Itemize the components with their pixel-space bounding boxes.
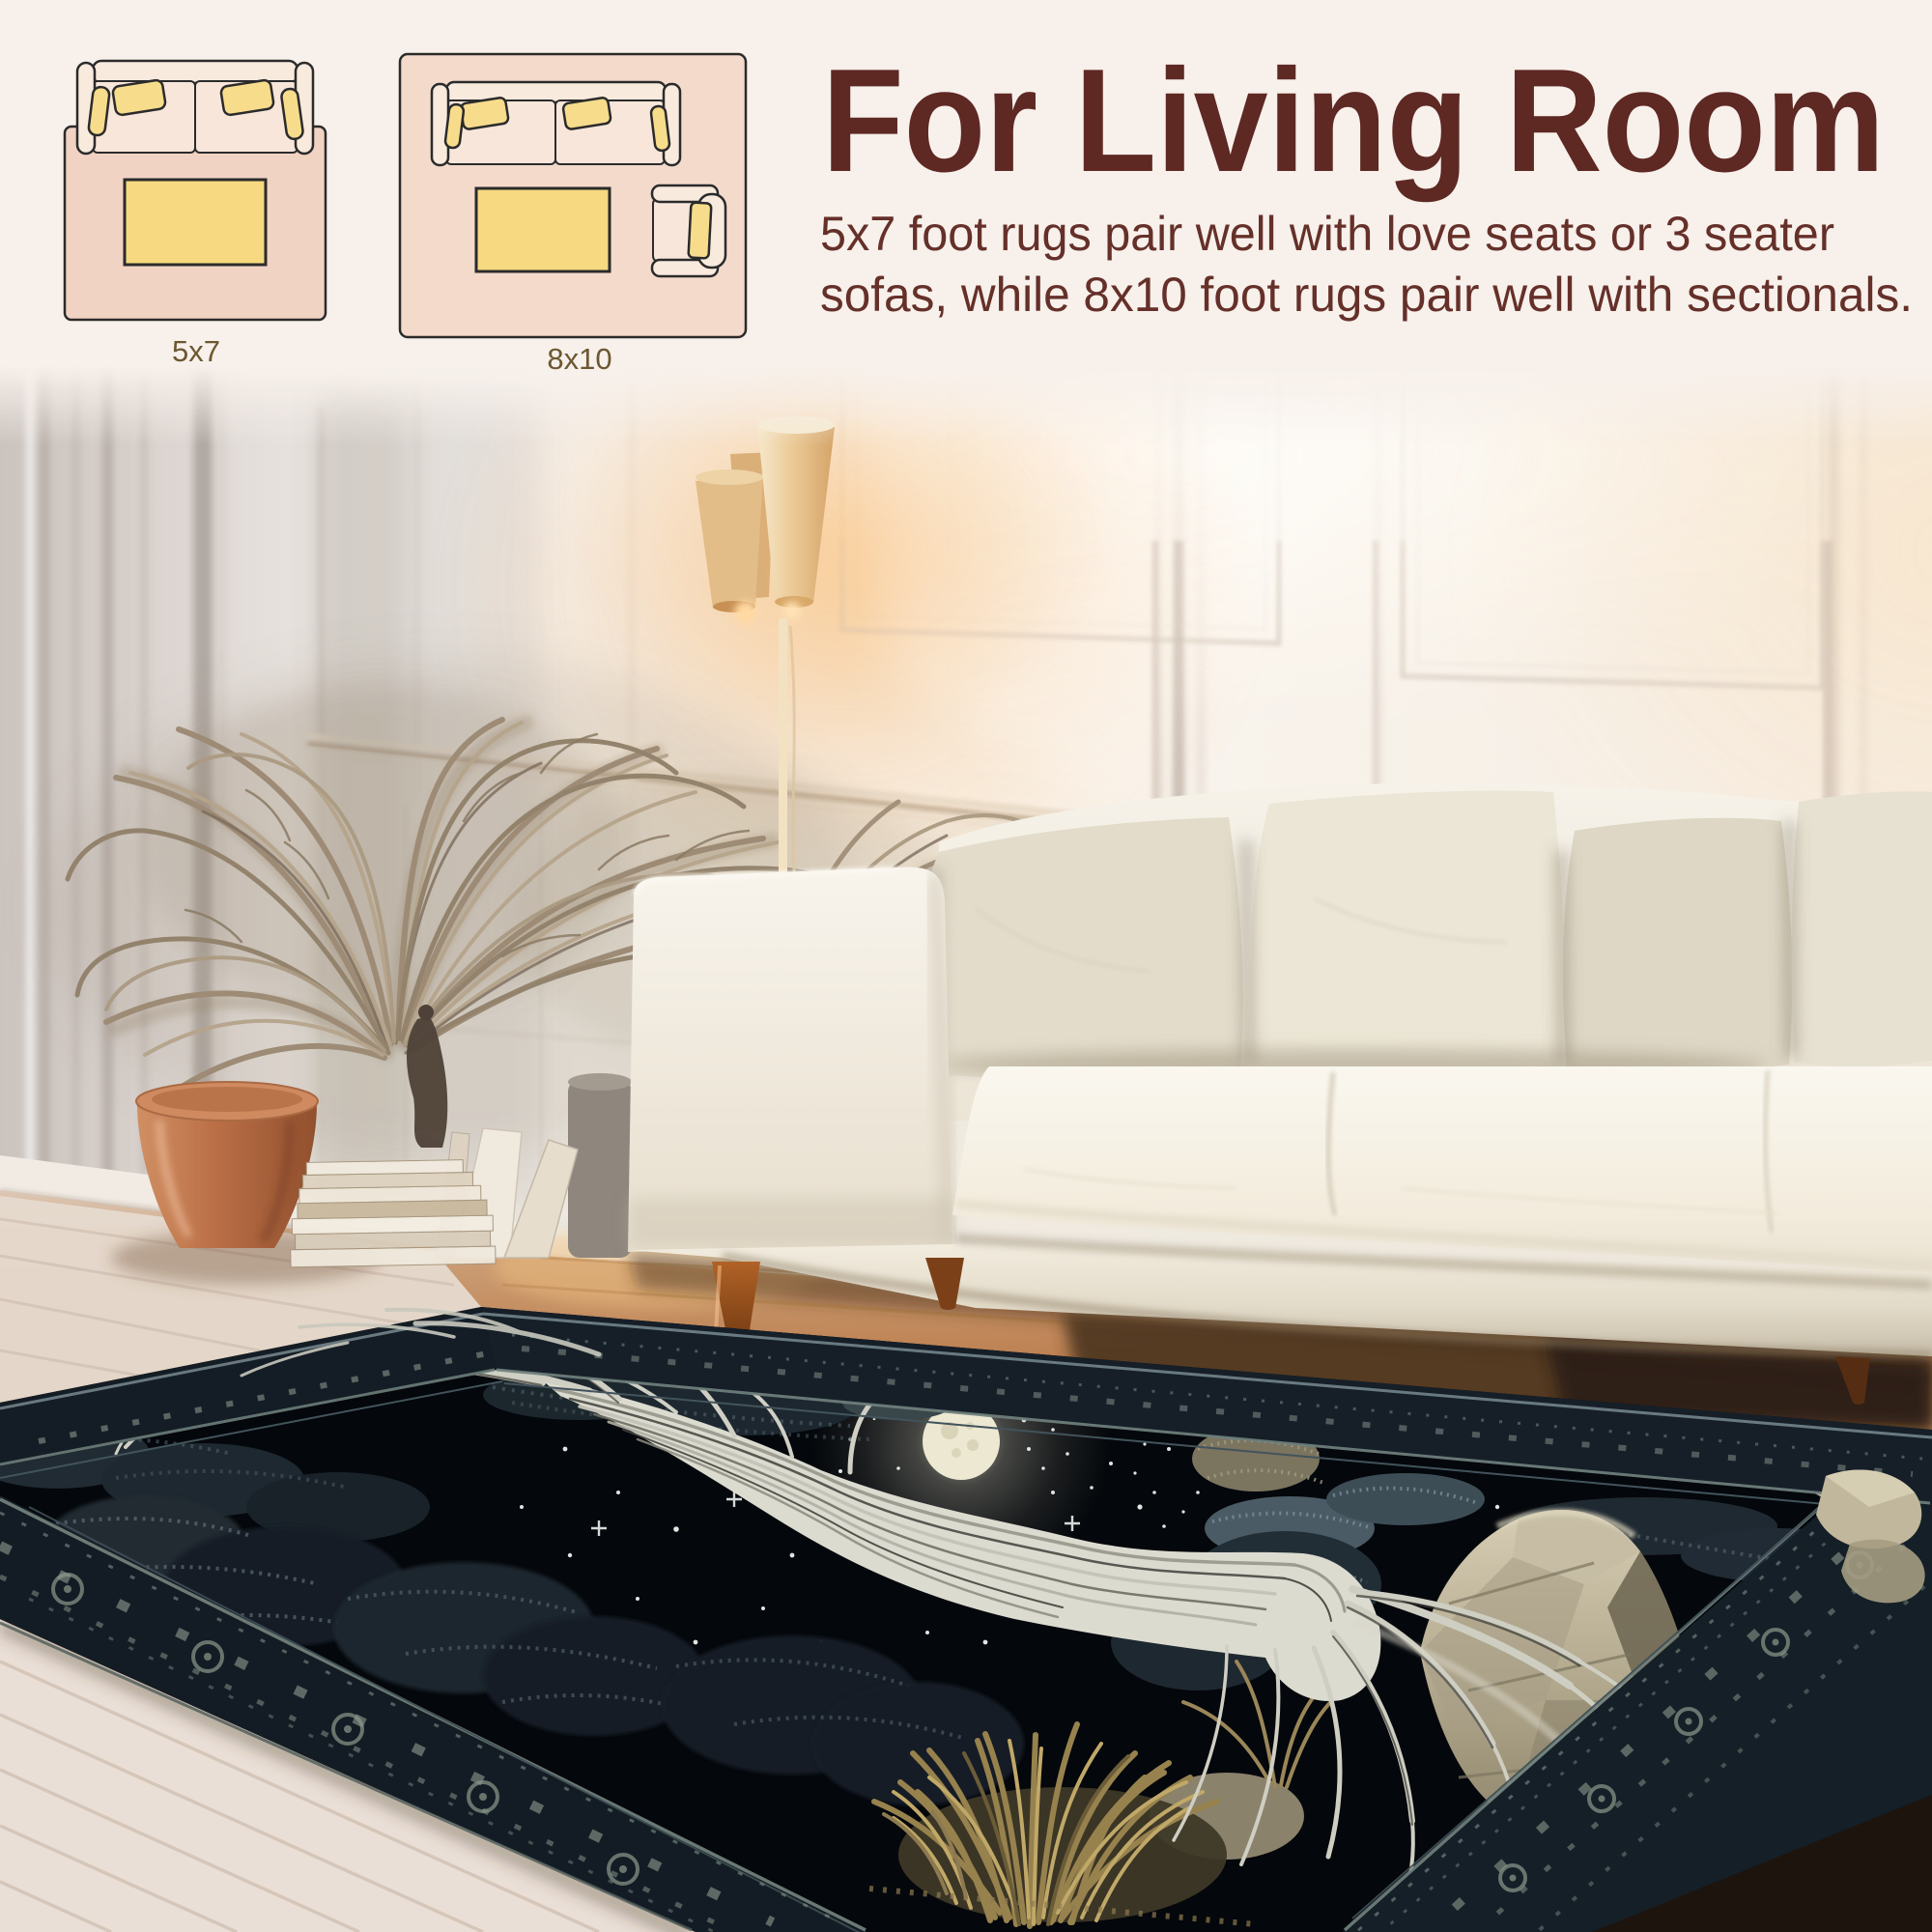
svg-text:sofas, while 8x10 foot rugs pa: sofas, while 8x10 foot rugs pair well wi… xyxy=(820,268,1913,322)
svg-text:5x7: 5x7 xyxy=(172,334,220,368)
svg-text:5x7 foot rugs pair well with l: 5x7 foot rugs pair well with love seats … xyxy=(820,207,1834,261)
svg-text:For Living Room: For Living Room xyxy=(822,39,1885,203)
svg-text:8x10: 8x10 xyxy=(547,342,611,376)
